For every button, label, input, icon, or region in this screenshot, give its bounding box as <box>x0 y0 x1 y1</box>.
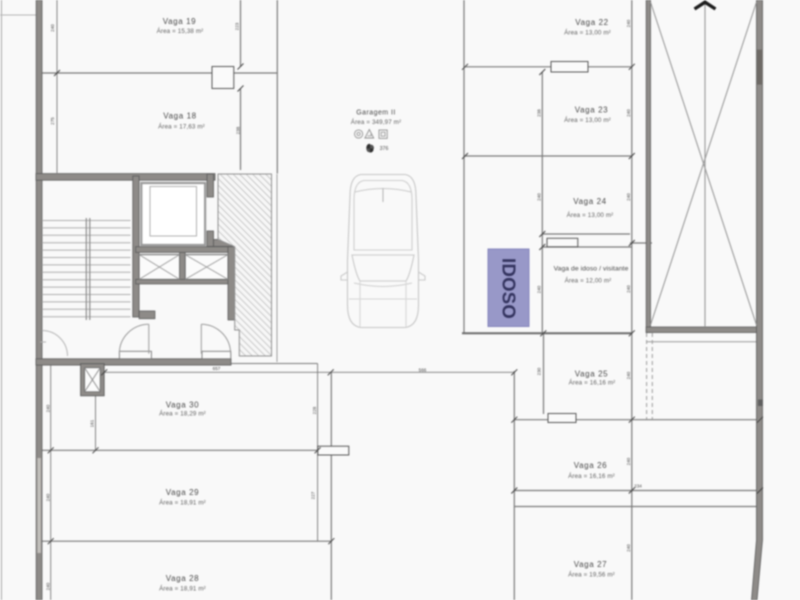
svg-text:227: 227 <box>311 491 316 499</box>
svg-text:376: 376 <box>380 146 389 152</box>
svg-text:Área = 13,00 m²: Área = 13,00 m² <box>564 30 611 37</box>
svg-text:Vaga 19: Vaga 19 <box>163 17 196 26</box>
svg-text:Área = 18,91 m²: Área = 18,91 m² <box>159 500 206 507</box>
svg-text:Área = 349,97 m²: Área = 349,97 m² <box>351 119 401 126</box>
svg-text:Vaga 29: Vaga 29 <box>166 488 199 497</box>
svg-text:Área = 18,29 m²: Área = 18,29 m² <box>159 411 206 418</box>
svg-text:238: 238 <box>537 109 542 117</box>
svg-text:234: 234 <box>634 484 642 489</box>
svg-text:Vaga 24: Vaga 24 <box>573 197 606 206</box>
svg-text:240: 240 <box>626 193 631 201</box>
svg-text:Área = 15,38 m²: Área = 15,38 m² <box>157 28 204 35</box>
svg-text:Área = 16,16 m²: Área = 16,16 m² <box>568 473 615 480</box>
svg-text:Vaga 22: Vaga 22 <box>575 18 608 27</box>
svg-text:Vaga 30: Vaga 30 <box>166 401 199 410</box>
svg-text:238: 238 <box>236 126 241 134</box>
svg-text:Garagem II: Garagem II <box>356 110 396 117</box>
svg-text:Área = 16,16 m²: Área = 16,16 m² <box>569 380 616 387</box>
svg-text:240: 240 <box>537 193 542 201</box>
svg-text:240: 240 <box>626 109 631 117</box>
svg-text:Vaga de idoso / visitante: Vaga de idoso / visitante <box>554 266 629 273</box>
svg-text:Vaga 27: Vaga 27 <box>574 560 607 569</box>
svg-text:275: 275 <box>50 117 55 125</box>
svg-text:230: 230 <box>537 367 542 375</box>
svg-text:Vaga 23: Vaga 23 <box>575 106 608 115</box>
svg-text:240: 240 <box>46 582 51 590</box>
svg-text:223: 223 <box>235 22 240 30</box>
svg-text:240: 240 <box>537 285 542 293</box>
svg-text:Vaga 18: Vaga 18 <box>163 112 196 121</box>
svg-text:Área = 18,91 m²: Área = 18,91 m² <box>159 586 206 593</box>
svg-text:240: 240 <box>50 24 55 32</box>
svg-text:Área = 19,56 m²: Área = 19,56 m² <box>568 572 615 579</box>
svg-text:240: 240 <box>46 493 51 501</box>
svg-text:228: 228 <box>312 406 317 414</box>
svg-text:240: 240 <box>626 371 631 379</box>
svg-text:657: 657 <box>213 366 221 371</box>
svg-text:Área = 12,00 m²: Área = 12,00 m² <box>565 278 612 285</box>
svg-text:Área = 13,00 m²: Área = 13,00 m² <box>567 212 614 219</box>
svg-text:Vaga 25: Vaga 25 <box>575 370 608 379</box>
svg-text:Vaga 26: Vaga 26 <box>574 461 607 470</box>
svg-text:Área = 13,00 m²: Área = 13,00 m² <box>564 117 611 124</box>
svg-text:240: 240 <box>626 285 631 293</box>
svg-text:161: 161 <box>90 419 95 427</box>
svg-text:Área = 17,63 m²: Área = 17,63 m² <box>158 124 205 131</box>
svg-text:240: 240 <box>626 19 631 27</box>
svg-text:IDOSO: IDOSO <box>499 258 520 319</box>
svg-text:Vaga 28: Vaga 28 <box>166 574 199 583</box>
svg-text:240: 240 <box>46 404 51 412</box>
svg-text:566: 566 <box>419 368 427 373</box>
svg-text:240: 240 <box>626 544 631 552</box>
svg-text:240: 240 <box>626 457 631 465</box>
